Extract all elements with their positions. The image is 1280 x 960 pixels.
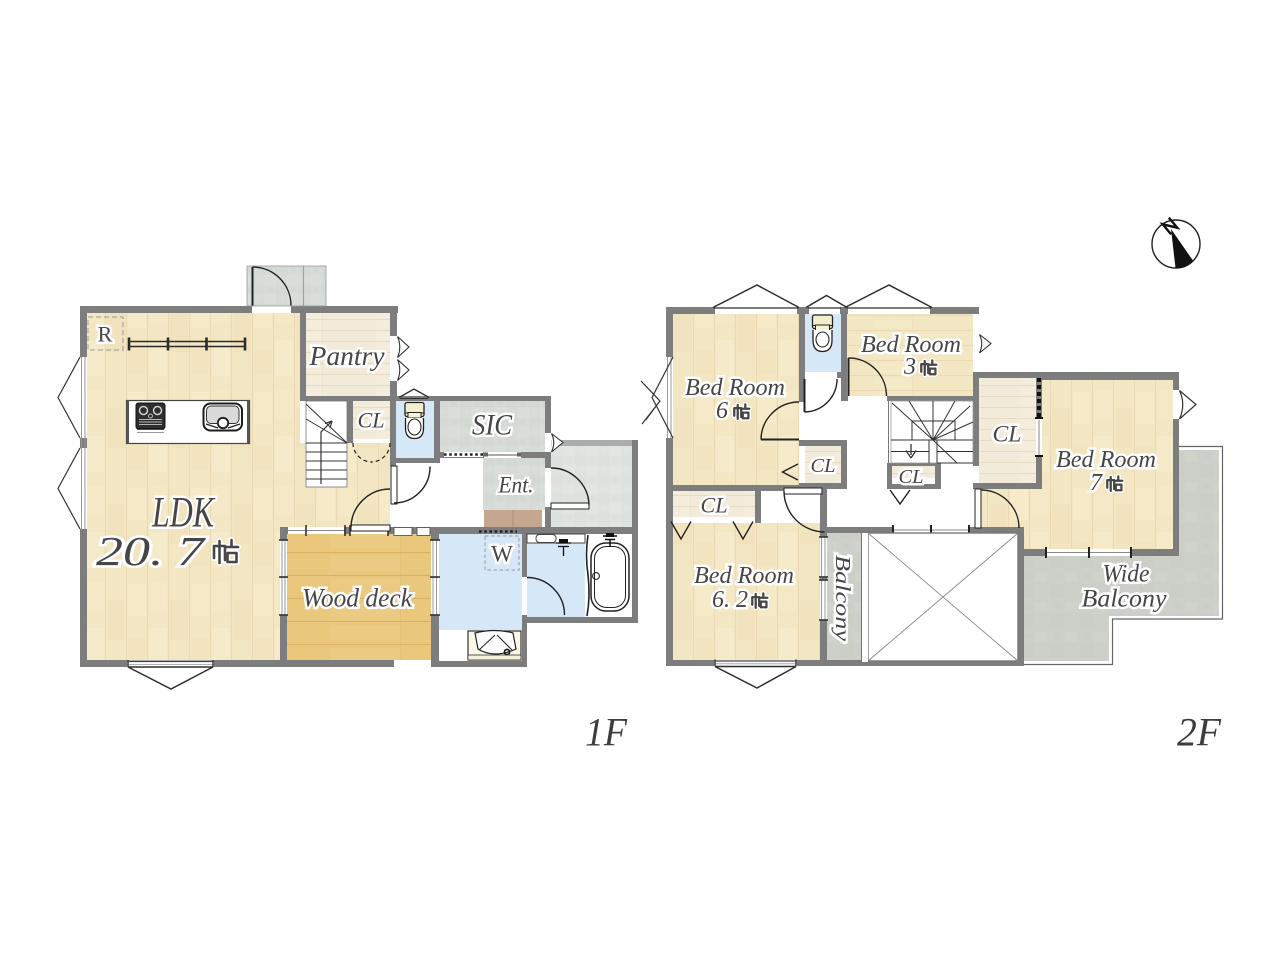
svg-text:7: 7 <box>1090 470 1103 496</box>
svg-text:Bed Room: Bed Room <box>685 375 785 401</box>
svg-text:Bed Room: Bed Room <box>694 563 794 589</box>
svg-text:6. 2: 6. 2 <box>712 587 748 613</box>
svg-text:CL: CL <box>993 422 1022 447</box>
svg-text:3: 3 <box>903 354 916 380</box>
svg-text:Wide: Wide <box>1103 561 1150 588</box>
svg-text:6: 6 <box>716 398 728 424</box>
svg-text:20. 7: 20. 7 <box>96 528 206 574</box>
svg-text:CL: CL <box>899 466 924 488</box>
svg-text:2F: 2F <box>1177 710 1222 755</box>
svg-text:CL: CL <box>701 493 728 518</box>
svg-text:Balcony: Balcony <box>1082 586 1168 613</box>
svg-text:1F: 1F <box>585 710 628 755</box>
svg-text:SIC: SIC <box>472 409 513 442</box>
svg-text:CL: CL <box>358 408 385 433</box>
svg-text:Balcony: Balcony <box>831 555 855 642</box>
svg-text:Ent.: Ent. <box>498 473 534 498</box>
svg-text:Pantry: Pantry <box>308 341 384 371</box>
svg-text:Bed Room: Bed Room <box>1056 447 1156 473</box>
svg-text:CL: CL <box>811 455 836 477</box>
svg-text:R: R <box>98 322 113 347</box>
svg-text:Wood deck: Wood deck <box>302 584 412 613</box>
svg-text:W: W <box>491 542 513 567</box>
